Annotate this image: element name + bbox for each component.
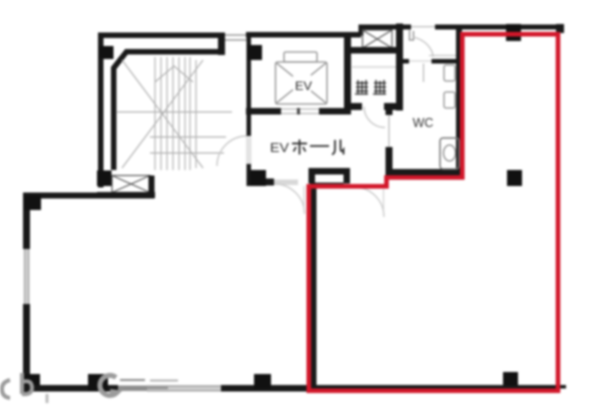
svg-text:EV: EV	[270, 141, 290, 155]
svg-text:EV: EV	[295, 79, 312, 93]
svg-text:WC: WC	[413, 116, 434, 130]
